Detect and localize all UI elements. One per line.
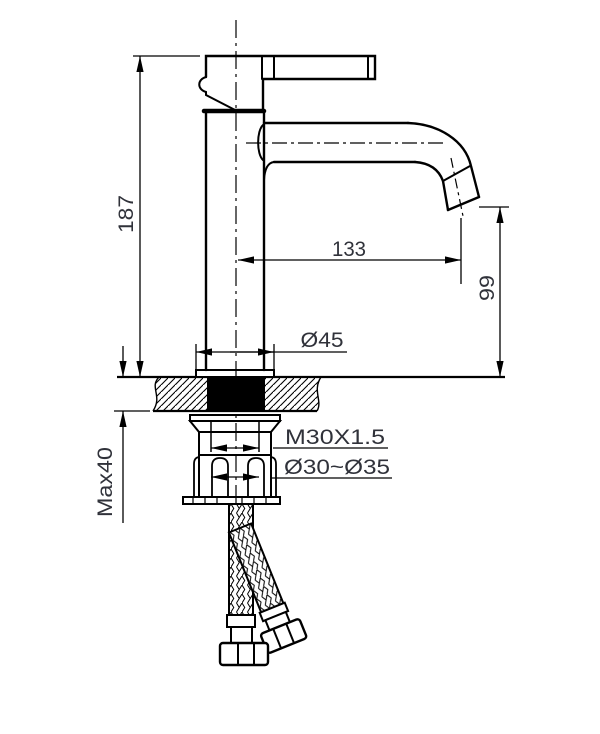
- spout-root-fillet: [264, 162, 274, 180]
- base-flange: [196, 370, 274, 377]
- spout-bend-inner: [415, 162, 443, 181]
- dim-spout-reach-label: 133: [332, 238, 366, 261]
- straight-hose-collar-a: [227, 615, 255, 627]
- cone-washer: [190, 421, 280, 432]
- outlet-joint-line: [443, 166, 470, 181]
- mounting-nut-upper: [199, 432, 271, 455]
- dim-base-diameter-label: Ø45: [301, 329, 344, 352]
- dim-max-thickness-label: Max40: [94, 447, 117, 517]
- handle-head-bump: [199, 77, 237, 111]
- dim-overall-height-label: 187: [115, 195, 138, 233]
- dim-max-counter-thickness: Max40: [94, 346, 123, 523]
- straight-hose-collar-b: [231, 627, 252, 643]
- faucet-installation-drawing: 187 133 99 Ø45 M30X1.5 Ø30~Ø35: [0, 0, 600, 734]
- supply-hoses: [220, 504, 307, 665]
- dim-mounting-hole-label: Ø30~Ø35: [284, 456, 390, 479]
- handle-lever-lines: [262, 56, 368, 79]
- dim-mounting-thread-label: M30X1.5: [285, 426, 385, 449]
- handle-head-outline: [206, 56, 375, 111]
- straight-hose-hex-nut: [220, 643, 268, 665]
- dim-base-diameter: Ø45: [196, 329, 347, 371]
- faucet-outline: [199, 56, 479, 370]
- dim-outlet-height: 99: [476, 207, 509, 377]
- dim-overall-height: 187: [115, 56, 200, 377]
- drawing-canvas: 187 133 99 Ø45 M30X1.5 Ø30~Ø35: [0, 0, 600, 734]
- dim-outlet-height-label: 99: [476, 275, 499, 301]
- dim-spout-reach: 133: [238, 218, 461, 284]
- dimensions: 187 133 99 Ø45 M30X1.5 Ø30~Ø35: [94, 56, 509, 523]
- outlet-end-face: [448, 197, 479, 210]
- outlet-left-edge: [443, 181, 448, 210]
- countertop-section: [114, 377, 505, 411]
